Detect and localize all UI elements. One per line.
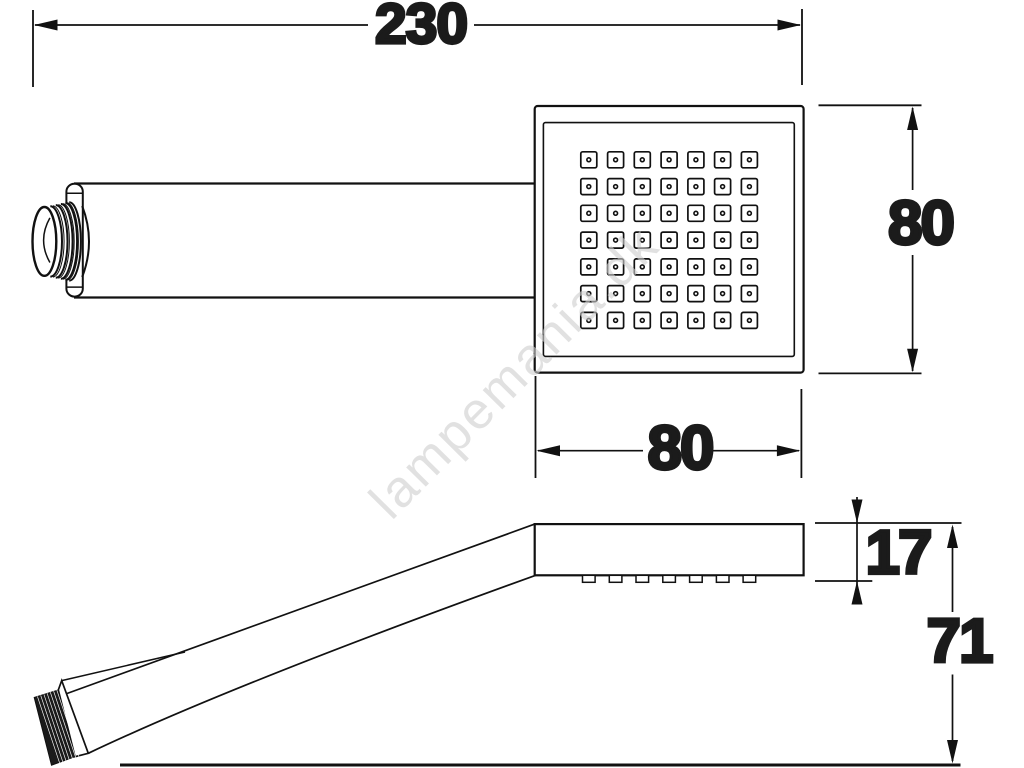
svg-text:17: 17 — [866, 519, 931, 588]
svg-text:230: 230 — [375, 0, 467, 56]
svg-text:80: 80 — [888, 189, 953, 258]
svg-text:80: 80 — [648, 414, 713, 483]
svg-text:71: 71 — [927, 607, 992, 676]
